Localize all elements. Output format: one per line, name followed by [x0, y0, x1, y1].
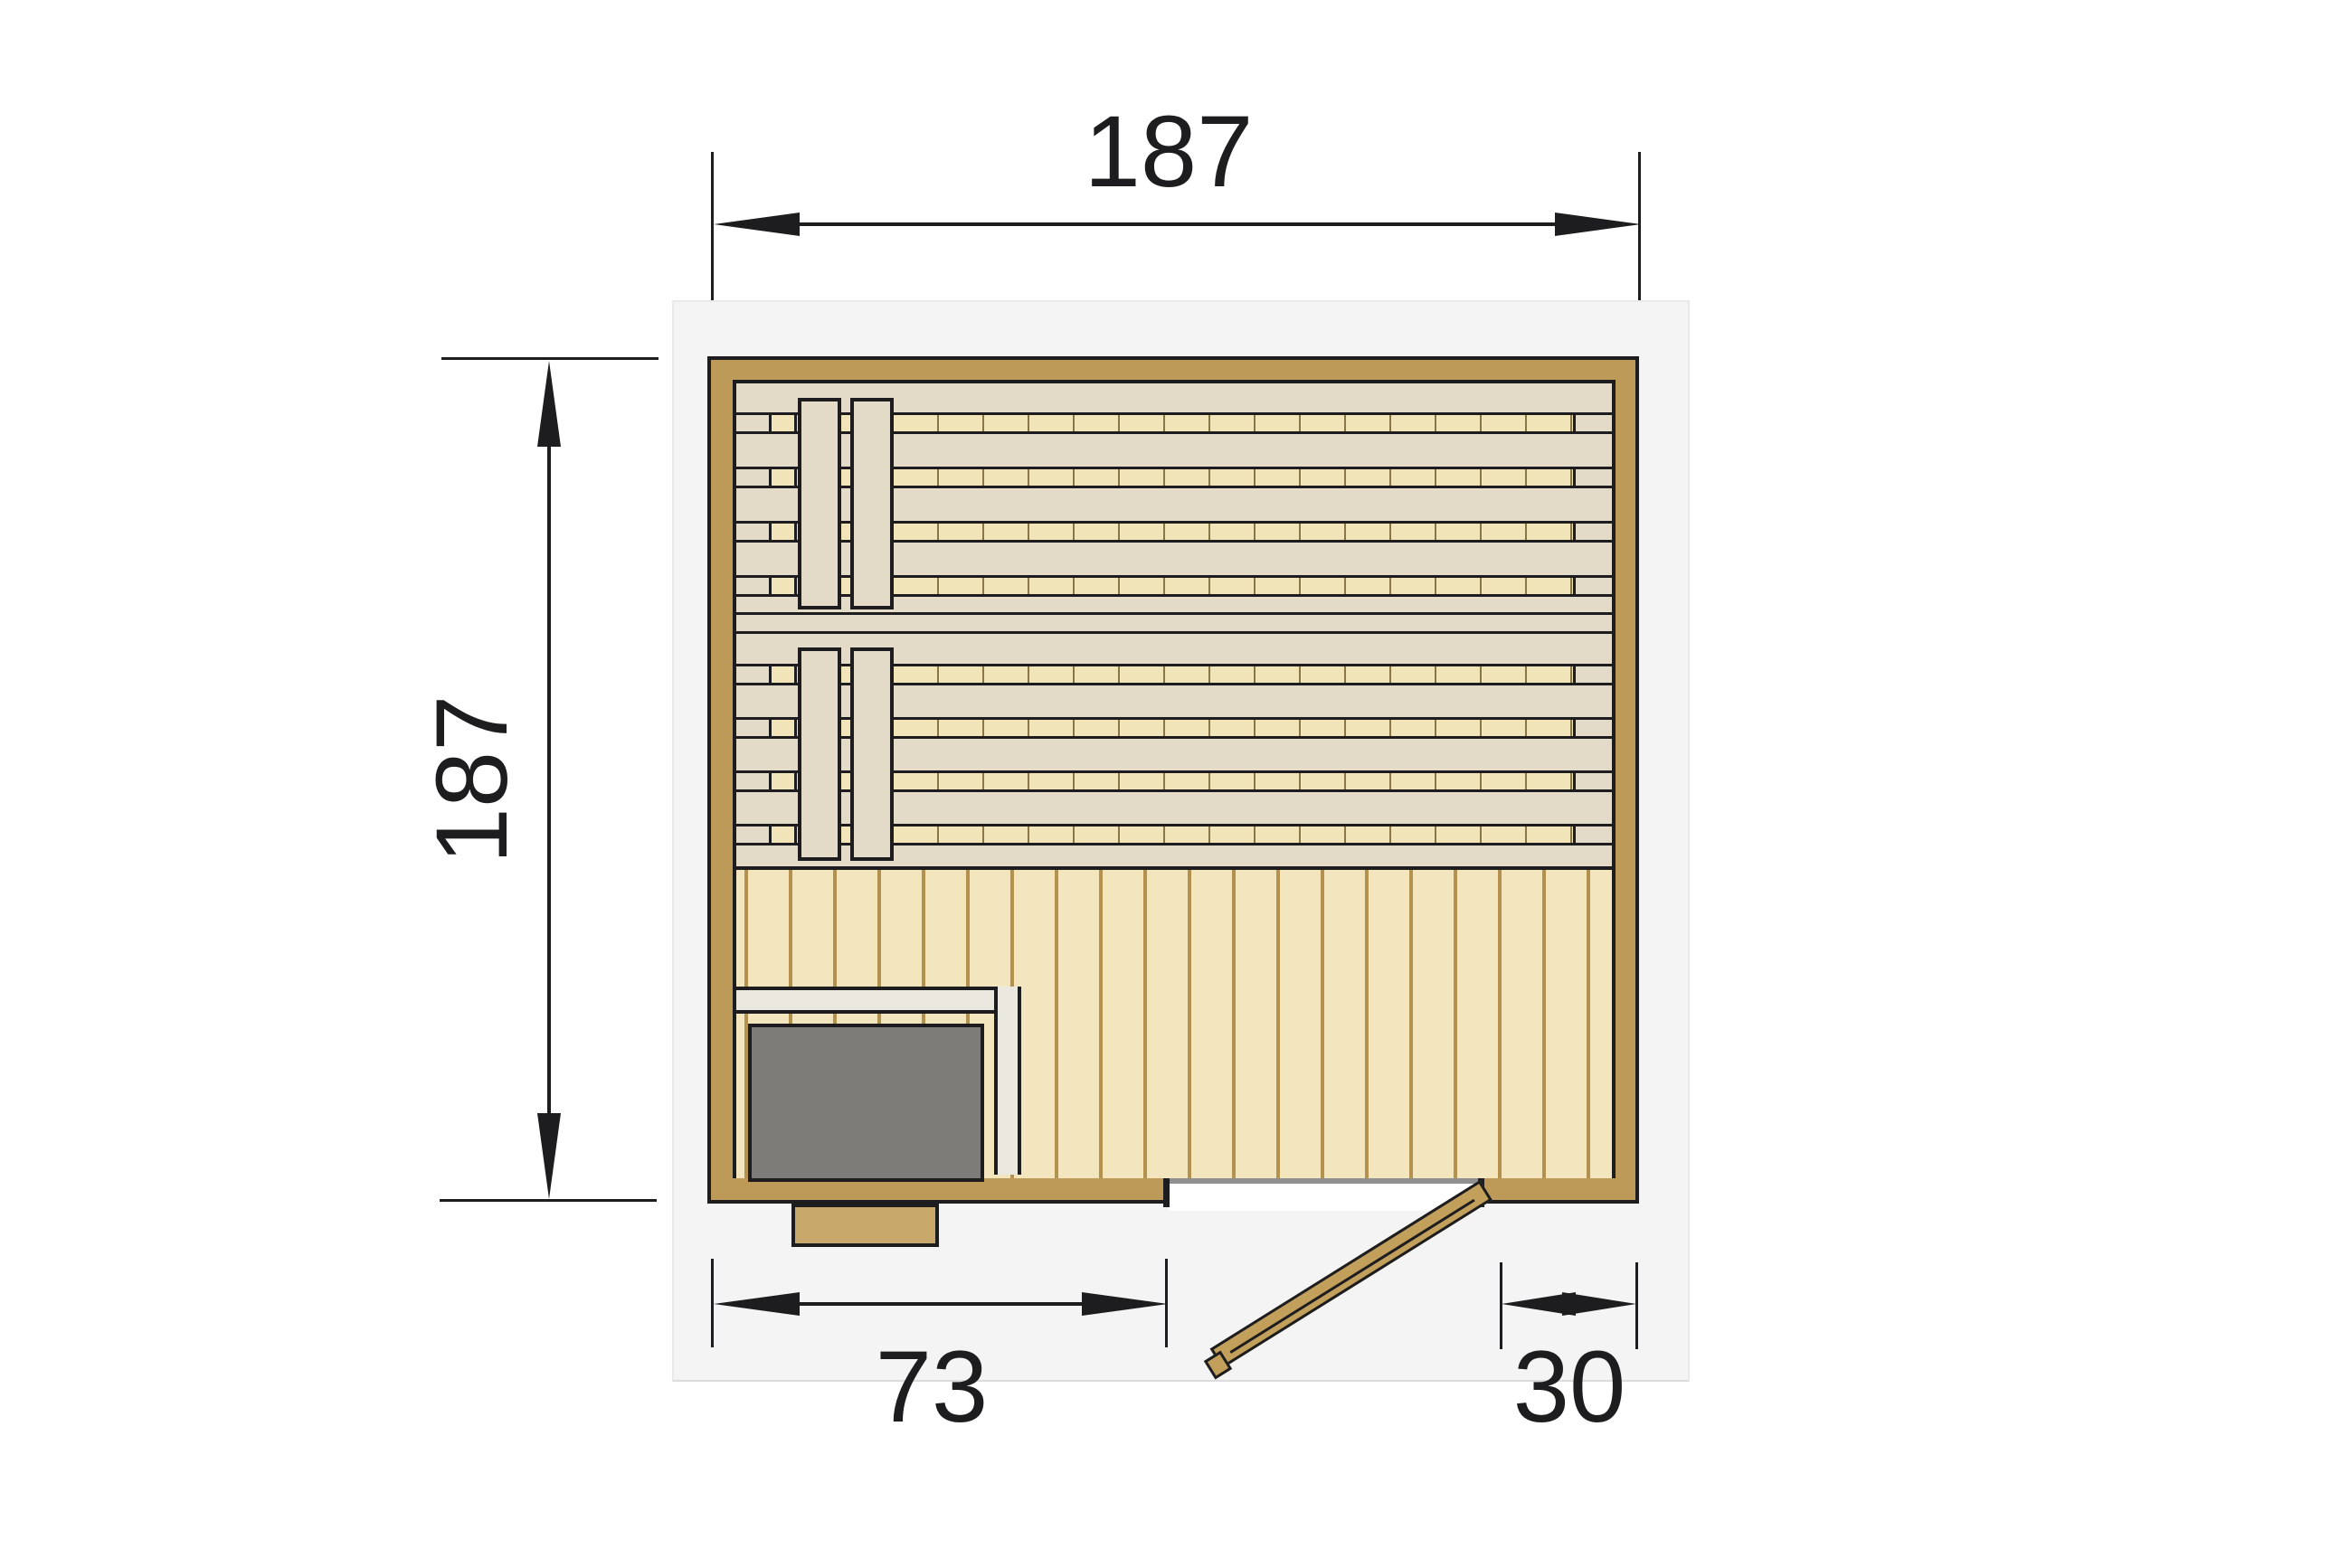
heater-guard-rail-side — [994, 987, 1021, 1175]
strip-divider — [1028, 827, 1029, 843]
strip-divider — [1299, 827, 1301, 843]
strip-divider — [1028, 415, 1029, 431]
strip-divider — [1254, 415, 1256, 431]
floor-plank-line — [1055, 870, 1058, 1178]
dim-top-arrow-left — [714, 213, 800, 236]
dim-top-arrow-right — [1555, 213, 1641, 236]
strip-divider — [1570, 415, 1572, 431]
strip-divider — [937, 773, 939, 789]
strip-end-cap — [736, 773, 772, 789]
strip-divider — [1344, 469, 1346, 486]
strip-divider — [1073, 666, 1075, 683]
strip-end-cap — [736, 827, 772, 843]
strip-divider — [1073, 773, 1075, 789]
dim-30-label: 30 — [1434, 1337, 1705, 1438]
strip-divider — [1389, 415, 1391, 431]
strip-divider — [1208, 469, 1210, 486]
strip-divider — [794, 827, 797, 843]
strip-divider — [1254, 773, 1256, 789]
strip-divider — [1570, 578, 1572, 594]
strip-divider — [937, 415, 939, 431]
strip-divider — [1570, 827, 1572, 843]
strip-divider — [1073, 415, 1075, 431]
floor-plank-line — [1099, 870, 1103, 1178]
strip-divider — [982, 524, 984, 540]
strip-divider — [982, 720, 984, 736]
strip-divider — [1299, 773, 1301, 789]
strip-divider — [1480, 773, 1482, 789]
strip-end-cap — [736, 720, 772, 736]
strip-divider — [1435, 578, 1436, 594]
strip-divider — [1208, 666, 1210, 683]
strip-divider — [1163, 720, 1165, 736]
strip-divider — [1254, 524, 1256, 540]
strip-divider — [1254, 469, 1256, 486]
strip-divider — [1344, 666, 1346, 683]
strip-divider — [1570, 469, 1572, 486]
strip-divider — [1254, 666, 1256, 683]
strip-divider — [1028, 578, 1029, 594]
dim-left-line — [547, 443, 551, 1119]
strip-divider — [1344, 524, 1346, 540]
strip-divider — [1208, 524, 1210, 540]
strip-end-cap — [736, 524, 772, 540]
strip-divider — [1073, 720, 1075, 736]
strip-divider — [1389, 578, 1391, 594]
strip-divider — [1163, 415, 1165, 431]
strip-divider — [1344, 773, 1346, 789]
floor-plank-line — [1409, 870, 1413, 1178]
strip-divider — [1254, 720, 1256, 736]
strip-divider — [1028, 666, 1029, 683]
strip-divider — [1480, 827, 1482, 843]
strip-divider — [1163, 773, 1165, 789]
heater-guard-rail-top — [736, 987, 1014, 1014]
strip-divider — [794, 469, 797, 486]
strip-divider — [1163, 827, 1165, 843]
strip-divider — [937, 827, 939, 843]
strip-divider — [1208, 415, 1210, 431]
strip-divider — [1208, 578, 1210, 594]
strip-divider — [1118, 578, 1120, 594]
dim-left-extension-top — [441, 357, 659, 360]
strip-divider — [1299, 524, 1301, 540]
strip-divider — [982, 827, 984, 843]
floor-plank-line — [1454, 870, 1457, 1178]
dim-left-extension-bottom — [440, 1199, 657, 1202]
headrest-board — [850, 647, 894, 861]
strip-divider — [794, 578, 797, 594]
strip-end-cap — [736, 469, 772, 486]
strip-divider — [982, 415, 984, 431]
dim-73-arrow-left — [714, 1292, 800, 1316]
sauna-floor-plan: 187 187 73 30 — [0, 0, 2350, 1568]
floor-plank-line — [1143, 870, 1147, 1178]
strip-divider — [1208, 827, 1210, 843]
strip-divider — [1028, 773, 1029, 789]
strip-divider — [1480, 415, 1482, 431]
strip-end-cap — [1573, 720, 1612, 736]
headrest-board — [850, 398, 894, 609]
strip-divider — [1435, 773, 1436, 789]
strip-divider — [1389, 720, 1391, 736]
strip-divider — [982, 666, 984, 683]
strip-divider — [1480, 524, 1482, 540]
strip-divider — [1480, 578, 1482, 594]
strip-divider — [1118, 415, 1120, 431]
strip-divider — [1208, 720, 1210, 736]
strip-divider — [794, 415, 797, 431]
strip-divider — [794, 666, 797, 683]
strip-divider — [1118, 827, 1120, 843]
strip-divider — [1344, 415, 1346, 431]
strip-divider — [982, 773, 984, 789]
floor-plank-line — [1365, 870, 1369, 1178]
strip-divider — [1389, 827, 1391, 843]
strip-divider — [1480, 469, 1482, 486]
dim-left-arrow-up — [537, 361, 561, 447]
strip-divider — [1525, 578, 1527, 594]
bench-divider-plank — [736, 612, 1612, 634]
strip-divider — [1118, 469, 1120, 486]
strip-divider — [794, 720, 797, 736]
strip-divider — [1028, 524, 1029, 540]
strip-divider — [1435, 827, 1436, 843]
strip-divider — [1570, 524, 1572, 540]
strip-divider — [1435, 415, 1436, 431]
headrest-board — [798, 647, 841, 861]
dim-73-arrow-right — [1082, 1292, 1168, 1316]
floor-plank-line — [1498, 870, 1502, 1178]
strip-divider — [1389, 773, 1391, 789]
floor-plank-line — [1276, 870, 1280, 1178]
strip-divider — [1525, 720, 1527, 736]
floor-plank-line — [1587, 870, 1590, 1178]
strip-divider — [1389, 524, 1391, 540]
strip-divider — [1570, 666, 1572, 683]
strip-divider — [1435, 666, 1436, 683]
strip-divider — [1299, 469, 1301, 486]
strip-divider — [1344, 827, 1346, 843]
strip-divider — [1525, 666, 1527, 683]
strip-divider — [1028, 720, 1029, 736]
strip-end-cap — [1573, 827, 1612, 843]
dim-left-arrow-down — [537, 1113, 561, 1199]
strip-divider — [794, 773, 797, 789]
strip-divider — [1435, 469, 1436, 486]
floor-plank-line — [1188, 870, 1191, 1178]
dim-30-arrow-right — [1562, 1292, 1636, 1316]
dim-73-label: 73 — [796, 1337, 1067, 1438]
strip-divider — [1073, 827, 1075, 843]
strip-divider — [937, 578, 939, 594]
sauna-floor — [736, 866, 1612, 1178]
dim-73-line — [796, 1302, 1085, 1306]
strip-divider — [1254, 578, 1256, 594]
strip-end-cap — [1573, 469, 1612, 486]
strip-divider — [1299, 720, 1301, 736]
strip-end-cap — [736, 666, 772, 683]
strip-divider — [1525, 469, 1527, 486]
strip-divider — [1525, 415, 1527, 431]
strip-divider — [937, 666, 939, 683]
strip-divider — [1073, 524, 1075, 540]
door-threshold — [1169, 1178, 1481, 1184]
floor-plank-line — [1232, 870, 1236, 1178]
dim-top-line — [796, 222, 1559, 226]
sauna-heater — [748, 1024, 984, 1182]
strip-divider — [1344, 720, 1346, 736]
strip-divider — [1208, 773, 1210, 789]
strip-divider — [1389, 469, 1391, 486]
strip-divider — [1570, 720, 1572, 736]
sauna-interior — [733, 380, 1616, 1178]
strip-divider — [1570, 773, 1572, 789]
strip-end-cap — [1573, 415, 1612, 431]
floor-plank-line — [1321, 870, 1324, 1178]
strip-divider — [937, 469, 939, 486]
strip-divider — [1163, 524, 1165, 540]
strip-divider — [1028, 469, 1029, 486]
strip-divider — [1118, 524, 1120, 540]
strip-divider — [1525, 524, 1527, 540]
heater-vent-box — [791, 1204, 939, 1247]
strip-divider — [1525, 773, 1527, 789]
strip-divider — [1163, 666, 1165, 683]
floor-plank-line — [1542, 870, 1546, 1178]
strip-end-cap — [736, 578, 772, 594]
strip-divider — [1525, 827, 1527, 843]
strip-divider — [1163, 469, 1165, 486]
strip-divider — [982, 469, 984, 486]
strip-divider — [1073, 578, 1075, 594]
strip-divider — [1118, 773, 1120, 789]
strip-end-cap — [736, 415, 772, 431]
strip-divider — [1299, 666, 1301, 683]
strip-divider — [1118, 720, 1120, 736]
dim-top-label: 187 — [988, 101, 1350, 203]
strip-end-cap — [1573, 666, 1612, 683]
strip-divider — [794, 524, 797, 540]
strip-divider — [982, 578, 984, 594]
strip-end-cap — [1573, 578, 1612, 594]
strip-divider — [937, 524, 939, 540]
strip-divider — [1480, 720, 1482, 736]
strip-divider — [1163, 578, 1165, 594]
strip-divider — [1344, 578, 1346, 594]
strip-divider — [1435, 524, 1436, 540]
strip-end-cap — [1573, 524, 1612, 540]
strip-divider — [1299, 415, 1301, 431]
strip-divider — [1435, 720, 1436, 736]
strip-end-cap — [1573, 773, 1612, 789]
strip-divider — [1299, 578, 1301, 594]
dim-left-label: 187 — [413, 599, 531, 960]
strip-divider — [1073, 469, 1075, 486]
strip-divider — [1389, 666, 1391, 683]
strip-divider — [937, 720, 939, 736]
strip-divider — [1480, 666, 1482, 683]
strip-divider — [1254, 827, 1256, 843]
strip-divider — [1118, 666, 1120, 683]
headrest-board — [798, 398, 841, 609]
